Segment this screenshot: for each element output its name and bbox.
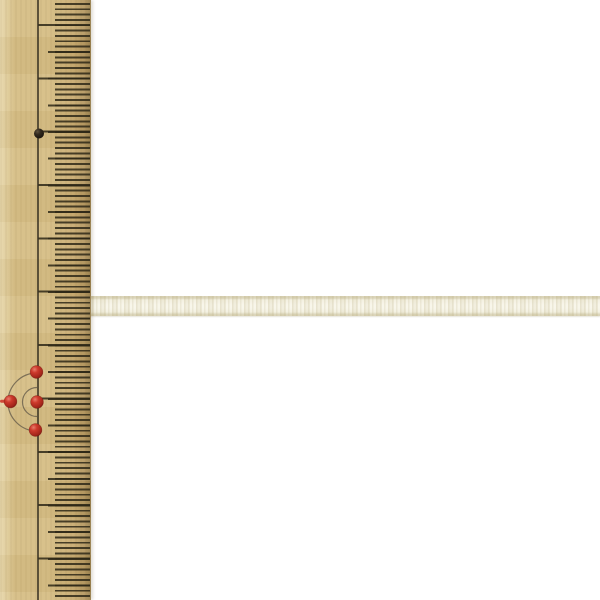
ruler [0,0,91,600]
ruler-center-line [37,0,39,600]
ticks-long [38,24,90,600]
ribbon [88,296,600,316]
product-photo-scene [0,0,600,600]
